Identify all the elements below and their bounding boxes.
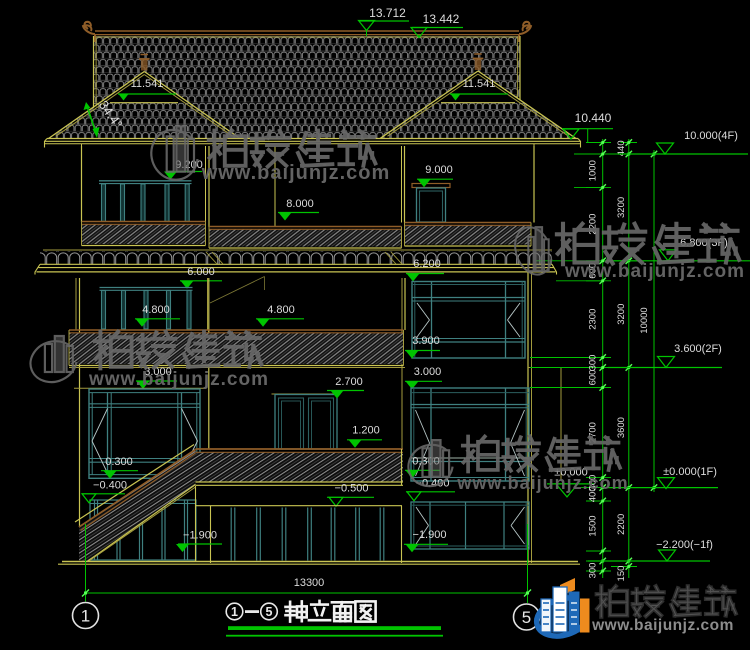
svg-text:10000: 10000 bbox=[639, 307, 650, 333]
svg-text:11.541: 11.541 bbox=[131, 78, 164, 90]
svg-text:www.baijunjz.com: www.baijunjz.com bbox=[564, 261, 745, 282]
svg-text:1: 1 bbox=[231, 605, 238, 619]
svg-text:6.200: 6.200 bbox=[413, 258, 441, 270]
svg-text:www.baijunjz.com: www.baijunjz.com bbox=[201, 162, 391, 184]
svg-text:www.baijunjz.com: www.baijunjz.com bbox=[88, 369, 269, 390]
svg-text:300: 300 bbox=[588, 563, 599, 579]
svg-text:2200: 2200 bbox=[616, 514, 627, 535]
svg-text:1.200: 1.200 bbox=[352, 425, 380, 437]
svg-text:11.541: 11.541 bbox=[463, 78, 496, 90]
svg-text:2300: 2300 bbox=[588, 309, 599, 330]
svg-text:−1.900: −1.900 bbox=[413, 529, 447, 541]
svg-text:4.800: 4.800 bbox=[267, 304, 295, 316]
svg-text:−1.900: −1.900 bbox=[183, 530, 217, 542]
svg-text:3.600(2F): 3.600(2F) bbox=[674, 343, 722, 355]
svg-text:13300: 13300 bbox=[294, 577, 325, 589]
svg-text:www.baijunjz.com: www.baijunjz.com bbox=[591, 617, 734, 634]
svg-text:5: 5 bbox=[266, 605, 273, 619]
svg-text:6.000: 6.000 bbox=[187, 266, 215, 278]
svg-text:−0.500: −0.500 bbox=[335, 483, 369, 495]
svg-text:4.800: 4.800 bbox=[142, 304, 170, 316]
svg-text:600: 600 bbox=[588, 370, 599, 386]
svg-text:300: 300 bbox=[588, 355, 599, 371]
svg-text:3200: 3200 bbox=[616, 304, 627, 325]
svg-text:13.712: 13.712 bbox=[369, 6, 406, 20]
svg-text:1500: 1500 bbox=[588, 515, 599, 536]
svg-text:8.000: 8.000 bbox=[286, 198, 314, 210]
svg-text:3.900: 3.900 bbox=[412, 335, 440, 347]
svg-text:−0.400: −0.400 bbox=[93, 480, 127, 492]
svg-text:13.442: 13.442 bbox=[423, 12, 460, 26]
svg-text:1: 1 bbox=[81, 607, 90, 626]
svg-text:150: 150 bbox=[616, 566, 627, 582]
svg-text:5: 5 bbox=[522, 608, 531, 627]
svg-text:1000: 1000 bbox=[588, 160, 599, 181]
svg-text:−2.200(−1f): −2.200(−1f) bbox=[656, 539, 713, 551]
svg-text:0.300: 0.300 bbox=[105, 456, 133, 468]
svg-text:2.700: 2.700 bbox=[335, 376, 363, 388]
svg-text:www.baijunjz.com: www.baijunjz.com bbox=[456, 473, 628, 493]
svg-text:9.000: 9.000 bbox=[425, 164, 453, 176]
svg-text:10.000(4F): 10.000(4F) bbox=[684, 130, 738, 142]
svg-text:3200: 3200 bbox=[616, 197, 627, 218]
svg-text:±0.000(1F): ±0.000(1F) bbox=[663, 466, 717, 478]
svg-text:10.440: 10.440 bbox=[575, 111, 612, 125]
svg-text:3600: 3600 bbox=[616, 417, 627, 438]
svg-text:3.000: 3.000 bbox=[414, 366, 442, 378]
